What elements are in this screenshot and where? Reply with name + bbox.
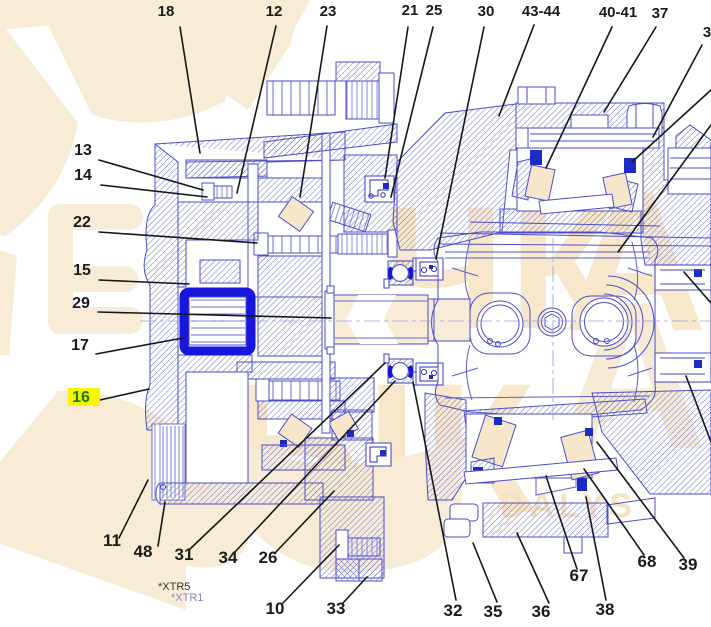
svg-text:34: 34 [219,548,238,567]
svg-text:39: 39 [679,555,698,574]
svg-text:16: 16 [72,389,90,406]
svg-text:21: 21 [402,2,419,19]
svg-text:14: 14 [74,167,92,184]
svg-text:35: 35 [484,602,503,621]
svg-text:12: 12 [266,3,283,20]
svg-text:22: 22 [73,214,91,231]
svg-text:43-44: 43-44 [522,3,561,20]
svg-text:17: 17 [71,337,89,354]
svg-text:30: 30 [478,3,495,20]
svg-text:37: 37 [652,5,669,22]
svg-text:29: 29 [72,295,90,312]
svg-text:33: 33 [327,599,346,618]
svg-text:32: 32 [444,601,463,620]
svg-text:11: 11 [103,531,121,550]
svg-text:3: 3 [703,24,711,41]
svg-text:15: 15 [73,262,91,279]
svg-text:26: 26 [259,548,278,567]
svg-text:31: 31 [175,545,194,564]
svg-text:18: 18 [158,3,175,20]
svg-text:23: 23 [320,3,337,20]
svg-text:36: 36 [532,602,551,621]
svg-text:25: 25 [426,2,443,19]
svg-text:67: 67 [570,566,589,585]
svg-text:40-41: 40-41 [599,4,637,21]
svg-text:48: 48 [134,542,153,561]
svg-text:38: 38 [596,600,615,619]
svg-text:68: 68 [638,552,657,571]
svg-text:*XTR1: *XTR1 [171,592,203,604]
svg-text:13: 13 [74,142,92,159]
svg-text:10: 10 [266,599,285,618]
